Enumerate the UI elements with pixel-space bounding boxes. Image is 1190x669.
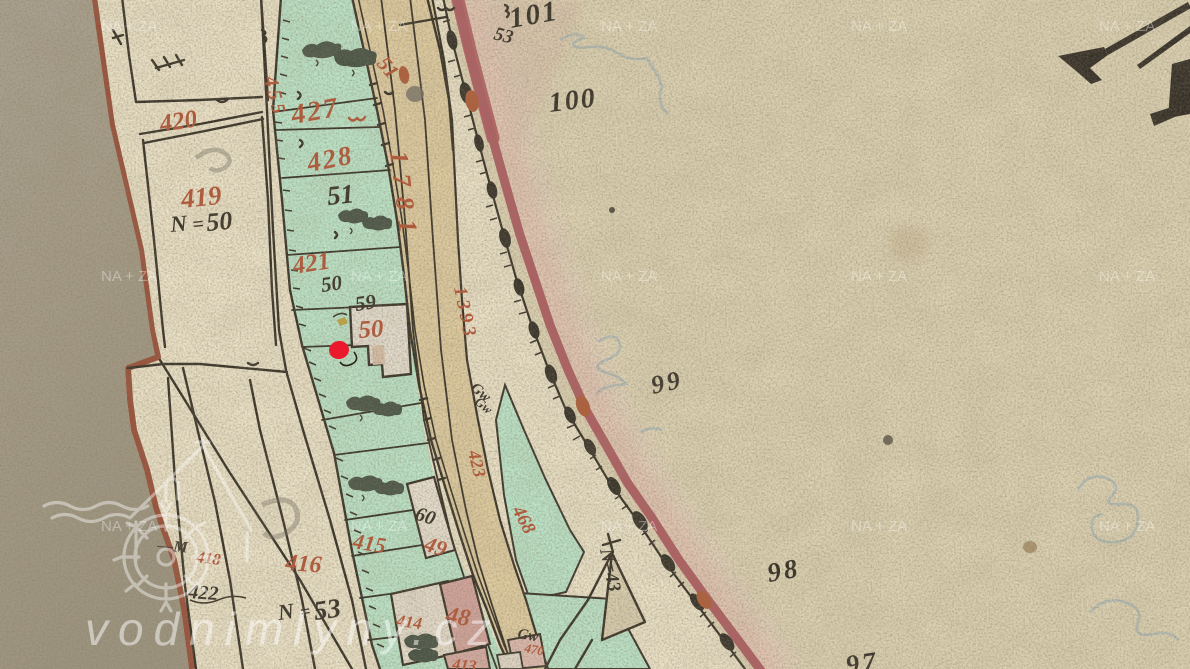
- svg-text:NA + ZA: NA + ZA: [351, 268, 407, 285]
- svg-text:NA + ZA: NA + ZA: [601, 18, 657, 35]
- svg-text:NA + ZA: NA + ZA: [351, 18, 407, 35]
- svg-text:NA + ZA: NA + ZA: [101, 18, 157, 35]
- svg-text:NA + ZA: NA + ZA: [1099, 18, 1155, 35]
- svg-text:NA + ZA: NA + ZA: [601, 518, 657, 535]
- svg-text:NA + ZA: NA + ZA: [851, 518, 907, 535]
- svg-text:NA + ZA: NA + ZA: [601, 268, 657, 285]
- svg-text:NA + ZA: NA + ZA: [1099, 268, 1155, 285]
- svg-text:NA + ZA: NA + ZA: [851, 268, 907, 285]
- svg-text:NA + ZA: NA + ZA: [851, 18, 907, 35]
- svg-text:NA + ZA: NA + ZA: [351, 518, 407, 535]
- svg-text:vodnimlyny.cz: vodnimlyny.cz: [85, 603, 500, 655]
- svg-text:NA + ZA: NA + ZA: [1099, 518, 1155, 535]
- svg-text:NA + ZA: NA + ZA: [101, 268, 157, 285]
